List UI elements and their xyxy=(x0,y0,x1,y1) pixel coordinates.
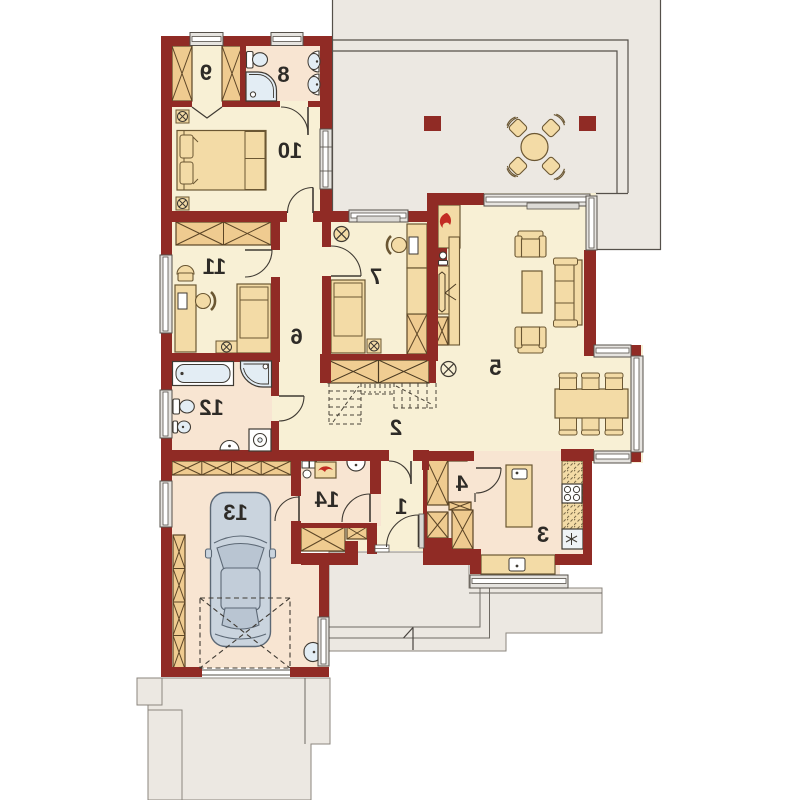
svg-text:14: 14 xyxy=(314,487,339,512)
svg-text:12: 12 xyxy=(199,395,223,420)
svg-text:11: 11 xyxy=(203,254,226,279)
svg-text:4: 4 xyxy=(455,471,468,496)
svg-text:6: 6 xyxy=(290,324,302,349)
svg-text:8: 8 xyxy=(277,62,289,87)
svg-text:13: 13 xyxy=(223,500,247,525)
svg-text:2: 2 xyxy=(390,415,402,440)
svg-text:3: 3 xyxy=(537,522,549,547)
svg-text:1: 1 xyxy=(395,494,407,519)
svg-text:7: 7 xyxy=(370,264,382,289)
svg-text:10: 10 xyxy=(278,138,302,163)
svg-text:9: 9 xyxy=(200,60,212,85)
svg-text:5: 5 xyxy=(489,355,501,380)
